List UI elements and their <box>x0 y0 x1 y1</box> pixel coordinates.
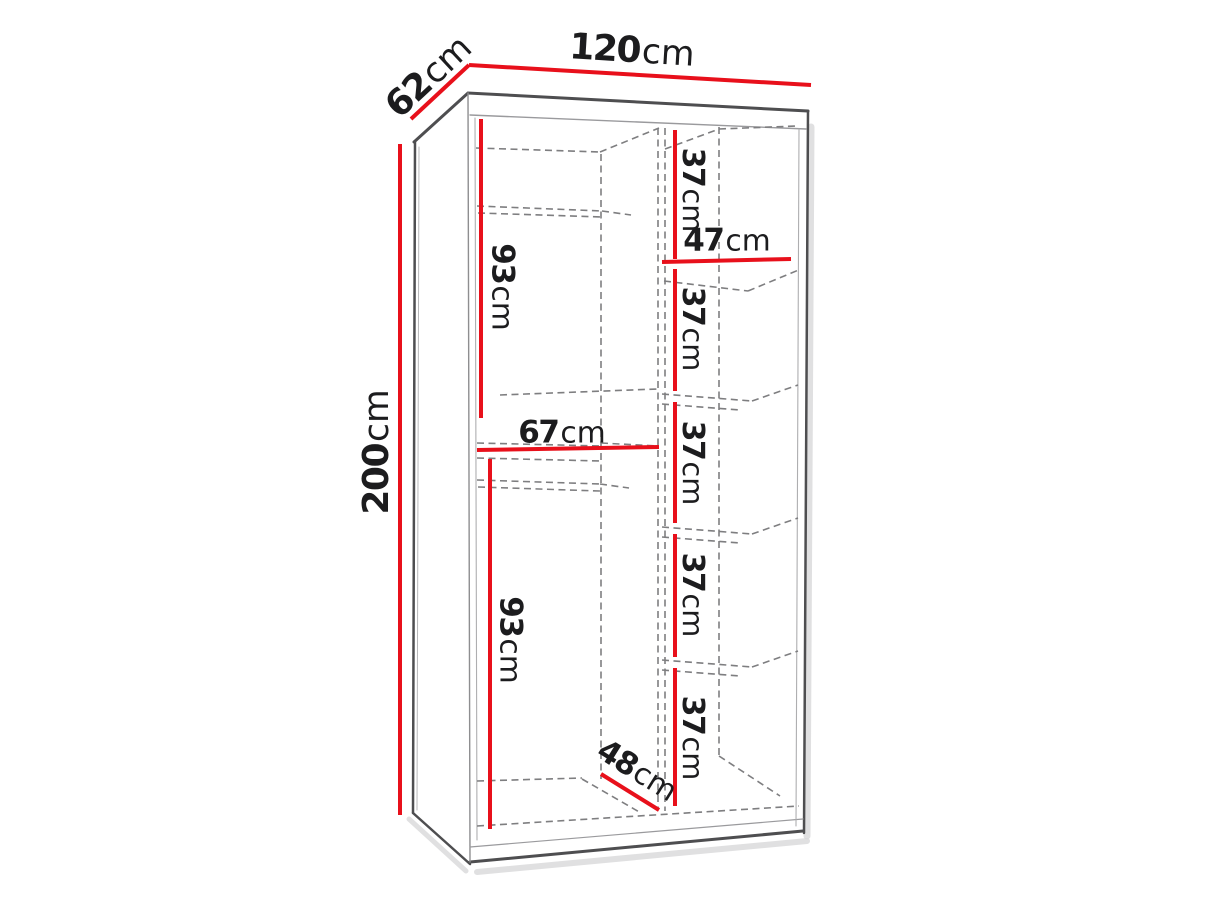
left-outer-edge <box>413 142 415 813</box>
wardrobe-dimension-diagram: 120cm 62cm 200cm 93cm 67cm 93cm 48cm 47c… <box>0 0 1214 911</box>
dim-label-right-section-5: 37cm <box>677 696 707 781</box>
dim-label-right-section-2: 37cm <box>677 287 707 372</box>
wardrobe-line-drawing <box>0 0 1214 911</box>
dim-label-left-shelf-width: 67cm <box>518 418 605 449</box>
top-front-edge <box>414 93 808 142</box>
dim-label-right-section-4: 37cm <box>677 553 707 638</box>
dim-label-height: 200cm <box>359 389 395 514</box>
left-inner-wall <box>475 118 477 840</box>
dimension-line-right-shelf-width <box>662 259 791 262</box>
dim-label-right-section-3: 37cm <box>677 421 707 506</box>
dim-label-upper-left-section: 93cm <box>487 243 518 330</box>
dim-label-right-section-1: 37cm <box>677 148 707 233</box>
bottom-left-bevel <box>413 813 470 864</box>
plinth-top-edge <box>470 819 803 847</box>
front-left-edge <box>468 93 470 862</box>
right-inner-wall <box>796 129 799 826</box>
dim-label-lower-left-section: 93cm <box>495 596 526 683</box>
dim-label-width: 120cm <box>568 29 695 73</box>
left-edge-highlight <box>417 147 419 810</box>
